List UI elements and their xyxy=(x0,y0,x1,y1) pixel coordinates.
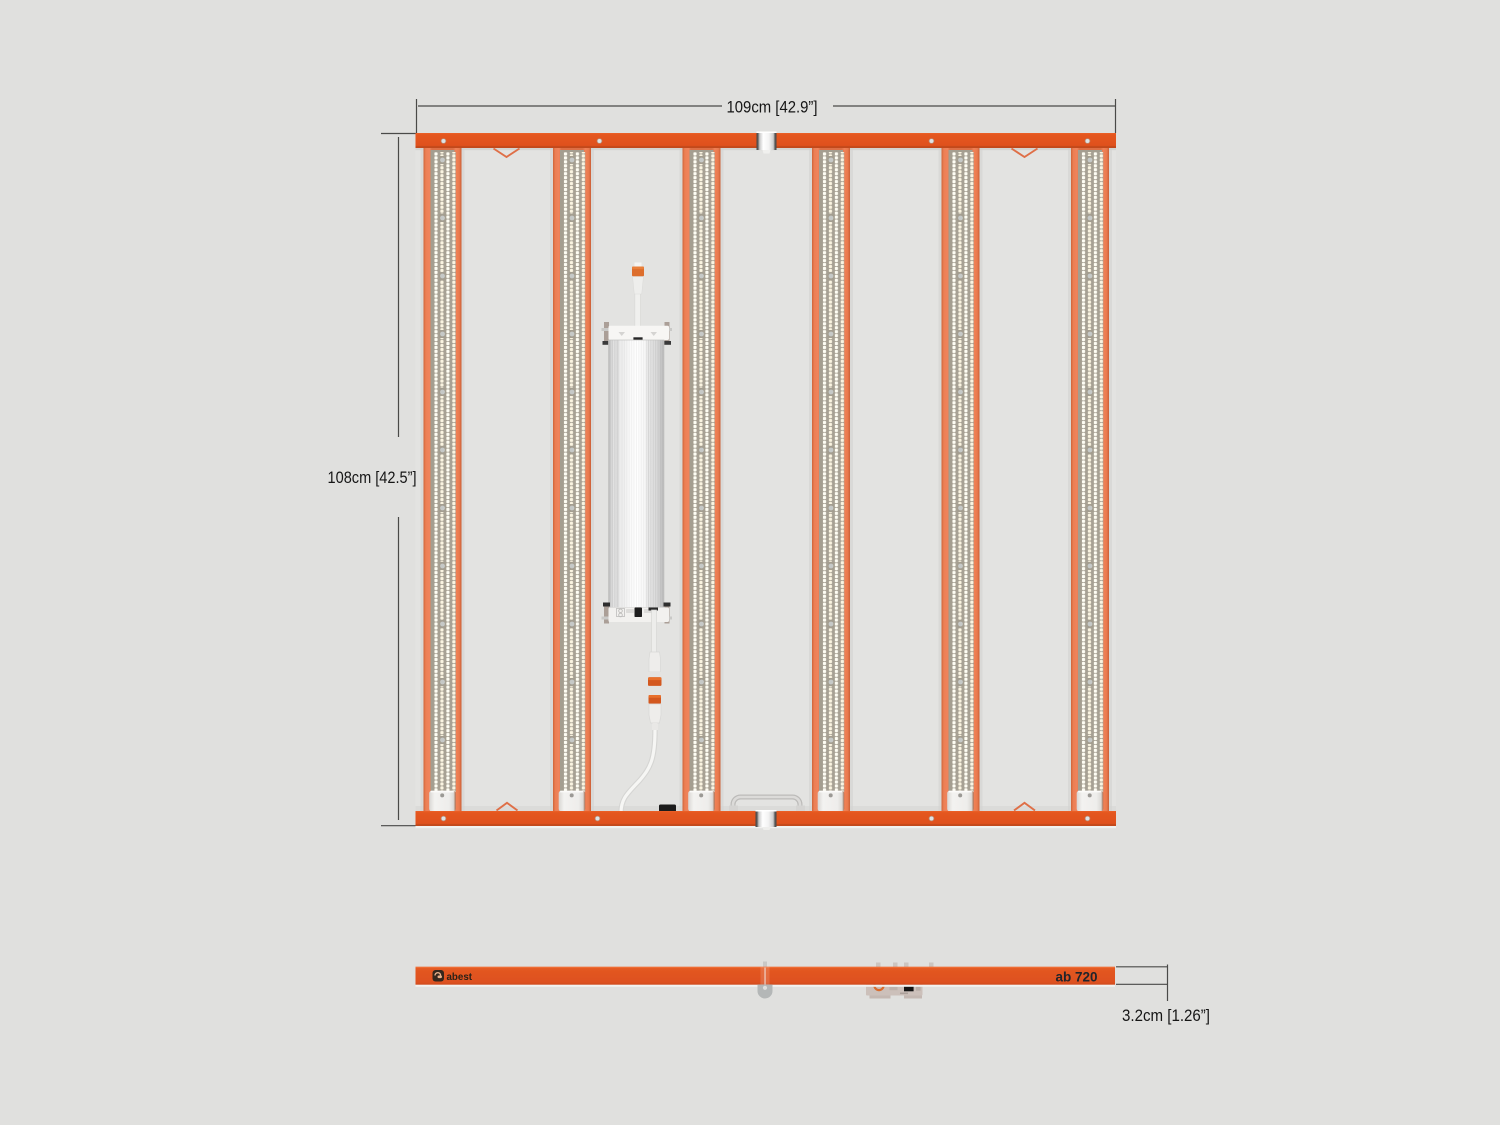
svg-text:109cm [42.9”]: 109cm [42.9”] xyxy=(727,99,818,117)
svg-text:3.2cm [1.26”]: 3.2cm [1.26”] xyxy=(1122,1007,1210,1025)
svg-text:abest: abest xyxy=(447,971,473,983)
svg-text:ab 720: ab 720 xyxy=(1055,970,1097,985)
svg-text:108cm [42.5”]: 108cm [42.5”] xyxy=(328,469,417,487)
